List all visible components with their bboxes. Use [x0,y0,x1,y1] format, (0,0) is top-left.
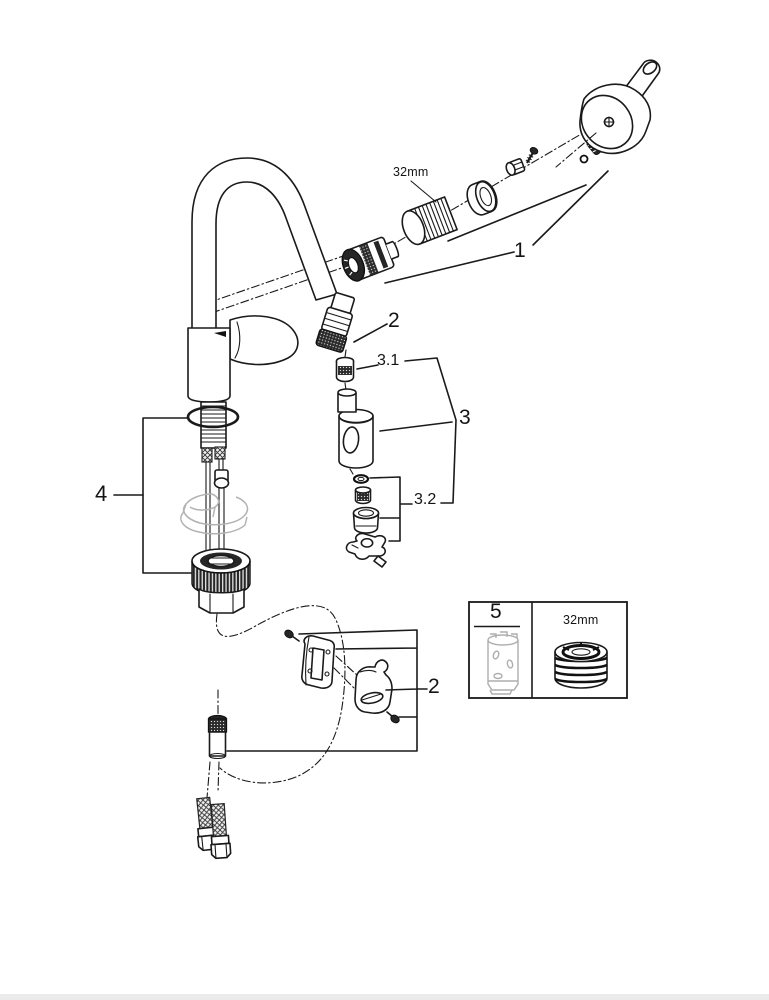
supply-hose-centerlines [207,762,219,798]
retainer-clip [346,534,386,567]
faucet-spout-arc [192,158,337,332]
hose-outlet-connector [315,291,358,353]
hose-guide-bracket [302,636,334,688]
flow-cartridge-3 [338,389,373,474]
clamp-assembly-axis [334,656,358,688]
size-label-32mm-box: 32mm [563,614,599,627]
spray-head [556,59,660,167]
outlet-cup [354,508,379,534]
parts-diagram-page: 1 2 3.1 3 3.2 4 2 5 32mm 32mm [0,0,769,1000]
callout-1-label: 1 [514,240,526,261]
callout-3-2-label: 3.2 [414,492,436,508]
hose-guide-shell [355,660,392,713]
hose-routing-path [216,606,345,783]
hose-guide-screw-bottom [387,712,401,724]
horseshoe-washer [181,494,248,534]
adapter-nut [505,158,526,176]
fixing-screw [524,146,539,165]
faucet-body [188,316,298,402]
callout-2-upper-label: 2 [388,310,400,331]
callout-4-label: 4 [95,483,107,505]
callout-3-1-label: 3.1 [377,353,399,369]
exploded-diagram-drawing [0,0,769,1000]
hose-coupling [209,716,227,759]
callout-5-label: 5 [490,601,502,622]
check-valve-3-1 [337,350,354,390]
size-label-32mm-top: 32mm [393,166,429,179]
insert-cylinder [356,487,371,504]
service-tool [488,632,518,694]
page-footer-bar [0,994,769,1000]
mounting-nut [192,549,250,613]
faucet-shank [188,402,238,552]
backflow-preventer [338,233,403,284]
callout-3-label: 3 [459,407,471,428]
callout-2-upper-leader [354,324,387,342]
mousseur-32mm [398,197,457,248]
callout-4-bracket [114,418,191,573]
callout-2-lower-label: 2 [428,676,440,697]
mousseur-32mm-accessory [555,643,607,689]
seal-washer [354,475,368,483]
hose-guide-screw-top [283,629,299,641]
